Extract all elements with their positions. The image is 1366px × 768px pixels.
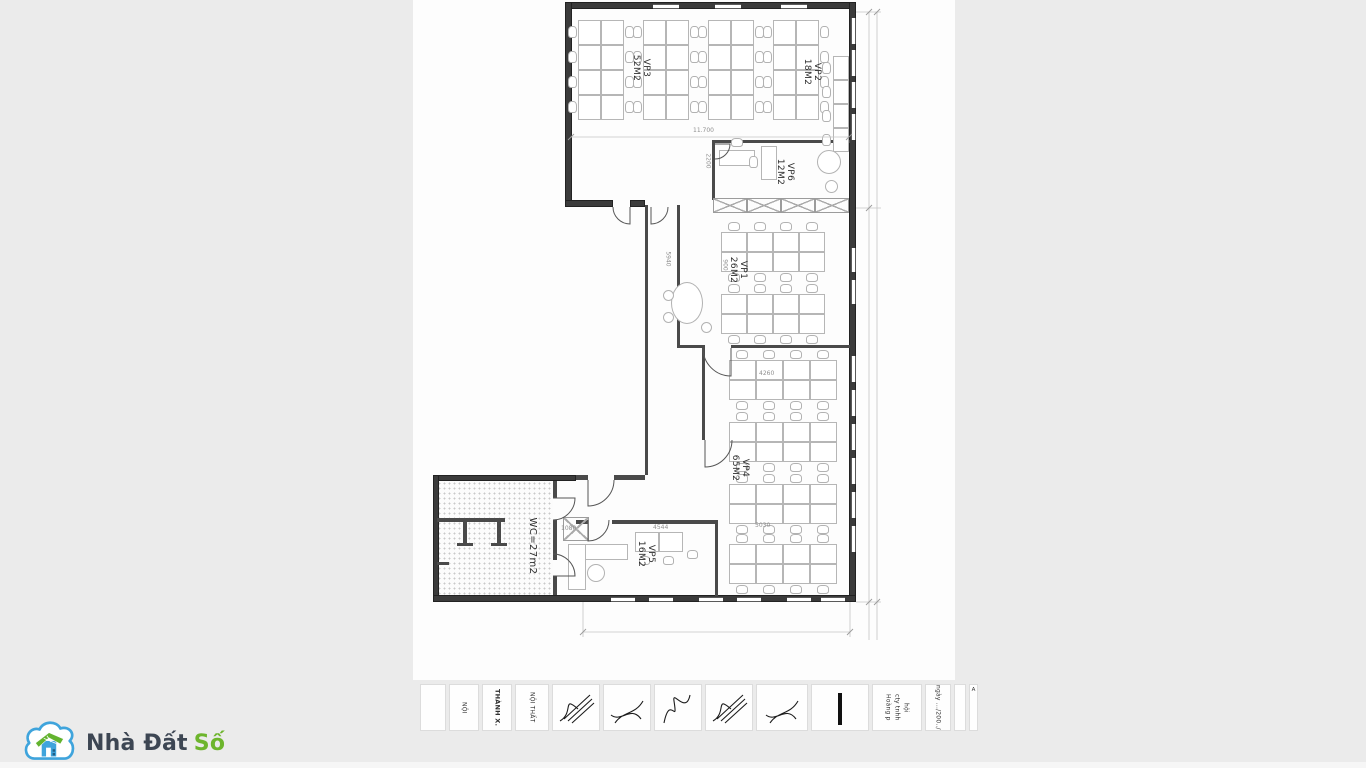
partition-wall bbox=[614, 475, 645, 480]
window bbox=[851, 248, 856, 272]
dimension-label: 1080 bbox=[561, 526, 576, 532]
chair bbox=[817, 350, 829, 359]
desk bbox=[601, 45, 624, 70]
desk bbox=[578, 70, 601, 95]
round-furniture bbox=[825, 180, 838, 193]
window bbox=[699, 597, 723, 602]
window bbox=[851, 82, 856, 108]
dimension-label: 4260 bbox=[759, 371, 774, 377]
desk bbox=[729, 544, 756, 564]
cabinet bbox=[713, 198, 747, 213]
dimension-label: 900 bbox=[722, 259, 728, 270]
title-block-cell bbox=[420, 684, 446, 731]
title-block-text: hội bbox=[903, 703, 910, 713]
desk bbox=[810, 442, 837, 462]
desk bbox=[601, 20, 624, 45]
chair bbox=[780, 222, 792, 231]
chair bbox=[763, 51, 772, 63]
desk bbox=[783, 484, 810, 504]
room-label-vp4: VP465M2 bbox=[730, 455, 750, 482]
cabinet bbox=[781, 198, 815, 213]
desk bbox=[721, 294, 747, 314]
dimension-label: 5030 bbox=[755, 523, 770, 529]
chair bbox=[817, 412, 829, 421]
chair bbox=[728, 284, 740, 293]
window bbox=[851, 390, 856, 416]
cabinet bbox=[747, 198, 781, 213]
desk bbox=[773, 95, 796, 120]
window bbox=[851, 114, 856, 140]
title-block-text: A bbox=[972, 687, 976, 693]
desk bbox=[756, 544, 783, 564]
chair bbox=[763, 585, 775, 594]
chair bbox=[736, 534, 748, 543]
chair bbox=[817, 525, 829, 534]
room-label-vp2: VP218M2 bbox=[802, 59, 822, 86]
desk bbox=[756, 504, 783, 524]
title-block-cell: A bbox=[969, 684, 978, 731]
chair bbox=[763, 76, 772, 88]
image-viewer-background: VP352M2VP218M2VP612M2VP126M2VP465M2VP516… bbox=[0, 0, 1366, 768]
desk bbox=[729, 360, 756, 380]
meeting-table bbox=[671, 282, 703, 324]
title-block-cell bbox=[654, 684, 702, 731]
chair bbox=[790, 350, 802, 359]
watermark-logo: Nhà ĐấtSố bbox=[22, 720, 225, 766]
desk bbox=[773, 45, 796, 70]
dimension-label: 2200 bbox=[705, 153, 711, 168]
desk bbox=[708, 95, 731, 120]
title-block-cell: THÀNH X. bbox=[482, 684, 512, 731]
window bbox=[851, 492, 856, 518]
desk bbox=[810, 380, 837, 400]
desk bbox=[729, 484, 756, 504]
desk bbox=[833, 128, 849, 152]
chair-round bbox=[663, 312, 674, 323]
chair bbox=[736, 350, 748, 359]
desk bbox=[666, 95, 689, 120]
chair bbox=[698, 51, 707, 63]
desk bbox=[643, 95, 666, 120]
desk bbox=[731, 45, 754, 70]
desk bbox=[731, 20, 754, 45]
desk bbox=[756, 484, 783, 504]
desk bbox=[601, 70, 624, 95]
dimension-label: 4544 bbox=[653, 525, 668, 531]
chair bbox=[749, 156, 758, 168]
chair bbox=[568, 101, 577, 113]
signature-scribble bbox=[553, 685, 599, 730]
chair bbox=[822, 62, 831, 74]
desk bbox=[578, 95, 601, 120]
chair bbox=[763, 412, 775, 421]
chair bbox=[806, 284, 818, 293]
chair bbox=[822, 110, 831, 122]
chair bbox=[790, 534, 802, 543]
partition-wall bbox=[457, 543, 473, 546]
room-label-vp5: VP516M2 bbox=[636, 541, 656, 568]
dimension-label: 5940 bbox=[665, 251, 671, 266]
desk bbox=[708, 70, 731, 95]
partition-wall bbox=[702, 345, 705, 440]
desk bbox=[783, 422, 810, 442]
desk bbox=[833, 104, 849, 128]
partition-wall bbox=[553, 520, 557, 560]
desk bbox=[783, 504, 810, 524]
chair bbox=[736, 585, 748, 594]
desk bbox=[773, 232, 799, 252]
chair bbox=[790, 463, 802, 472]
desk bbox=[799, 314, 825, 334]
chair bbox=[728, 222, 740, 231]
desk bbox=[773, 70, 796, 95]
chair bbox=[728, 335, 740, 344]
chair bbox=[754, 284, 766, 293]
desk bbox=[810, 484, 837, 504]
window bbox=[715, 4, 741, 9]
room-label-vp3: VP352M2 bbox=[631, 55, 651, 82]
window bbox=[737, 597, 761, 602]
brand-text: Nhà ĐấtSố bbox=[86, 731, 225, 756]
brand-suffix: Số bbox=[194, 731, 225, 756]
wall bbox=[565, 200, 613, 207]
desk bbox=[810, 564, 837, 584]
dimension-label: 11.700 bbox=[693, 128, 714, 134]
desk bbox=[810, 544, 837, 564]
partition-wall bbox=[553, 481, 557, 498]
window bbox=[821, 597, 845, 602]
chair bbox=[820, 26, 829, 38]
partition-wall bbox=[712, 140, 715, 200]
chair bbox=[763, 101, 772, 113]
window bbox=[611, 597, 635, 602]
chair bbox=[754, 222, 766, 231]
desk bbox=[729, 504, 756, 524]
title-block-text: cty tnhh bbox=[894, 694, 901, 720]
chair bbox=[754, 335, 766, 344]
bottom-band bbox=[0, 762, 1366, 768]
desk bbox=[783, 360, 810, 380]
title-block-cell bbox=[756, 684, 808, 731]
window bbox=[851, 526, 856, 552]
window bbox=[851, 458, 856, 484]
room-label-wc: WC=27m2 bbox=[527, 518, 537, 575]
partition-wall bbox=[645, 205, 648, 475]
round-furniture bbox=[817, 150, 841, 174]
desk bbox=[731, 70, 754, 95]
partition-wall bbox=[677, 205, 680, 348]
desk bbox=[773, 252, 799, 272]
chair bbox=[698, 26, 707, 38]
window bbox=[851, 18, 856, 44]
desk bbox=[783, 442, 810, 462]
partition-wall bbox=[437, 562, 449, 565]
chair bbox=[780, 273, 792, 282]
chair bbox=[822, 86, 831, 98]
cabinet bbox=[815, 198, 849, 213]
room-label-vp1: VP126M2 bbox=[728, 257, 748, 284]
desk bbox=[666, 70, 689, 95]
chair bbox=[817, 474, 829, 483]
desk bbox=[578, 20, 601, 45]
desk bbox=[601, 95, 624, 120]
chair bbox=[633, 26, 642, 38]
title-block-text: NỘI THẤT bbox=[529, 692, 536, 722]
window bbox=[851, 280, 856, 304]
title-block-cell: ngày .../200../ bbox=[925, 684, 951, 731]
desk bbox=[568, 544, 586, 590]
wall bbox=[630, 200, 645, 207]
chair bbox=[806, 335, 818, 344]
title-block-text: Hoàng p bbox=[885, 694, 892, 721]
chair bbox=[780, 284, 792, 293]
chair bbox=[790, 525, 802, 534]
desk bbox=[799, 232, 825, 252]
brand-prefix: Nhà Đất bbox=[86, 731, 188, 756]
desk bbox=[731, 95, 754, 120]
partition-wall bbox=[715, 520, 718, 596]
desk bbox=[708, 45, 731, 70]
title-block-cell bbox=[603, 684, 651, 731]
window bbox=[787, 597, 811, 602]
chair bbox=[754, 273, 766, 282]
desk bbox=[756, 422, 783, 442]
partition-wall bbox=[677, 345, 703, 348]
desk bbox=[810, 360, 837, 380]
partition-wall bbox=[731, 345, 850, 348]
chair bbox=[817, 585, 829, 594]
desk bbox=[756, 442, 783, 462]
window bbox=[781, 4, 807, 9]
title-block-cell bbox=[954, 684, 966, 731]
desk bbox=[799, 252, 825, 272]
desk bbox=[721, 232, 747, 252]
chair bbox=[698, 76, 707, 88]
chair bbox=[763, 534, 775, 543]
chair bbox=[790, 412, 802, 421]
desk bbox=[747, 232, 773, 252]
desk bbox=[708, 20, 731, 45]
title-block-cell: NỘI THẤT bbox=[515, 684, 549, 731]
floorplan-image[interactable]: VP352M2VP218M2VP612M2VP126M2VP465M2VP516… bbox=[413, 0, 955, 680]
desk bbox=[747, 314, 773, 334]
chair bbox=[736, 525, 748, 534]
window bbox=[649, 597, 673, 602]
desk bbox=[729, 422, 756, 442]
desk bbox=[773, 20, 796, 45]
chair bbox=[790, 585, 802, 594]
chair bbox=[763, 474, 775, 483]
chair bbox=[806, 222, 818, 231]
title-block-cell bbox=[705, 684, 753, 731]
partition-wall bbox=[553, 576, 557, 595]
desk bbox=[783, 564, 810, 584]
desk bbox=[578, 45, 601, 70]
chair bbox=[568, 76, 577, 88]
chair bbox=[790, 474, 802, 483]
desk bbox=[810, 504, 837, 524]
chair bbox=[736, 401, 748, 410]
desk bbox=[783, 380, 810, 400]
wall bbox=[433, 475, 439, 601]
chair bbox=[663, 556, 674, 565]
title-block-cell bbox=[811, 684, 869, 731]
window bbox=[851, 424, 856, 450]
chair bbox=[763, 350, 775, 359]
partition-wall bbox=[491, 543, 507, 546]
desk bbox=[833, 80, 849, 104]
title-block: NỘITHÀNH X.NỘI THẤTHoàng pcty tnhhhộingà… bbox=[420, 684, 978, 733]
desk bbox=[833, 56, 849, 80]
chair bbox=[568, 26, 577, 38]
desk bbox=[729, 564, 756, 584]
room-label-vp6: VP612M2 bbox=[775, 159, 795, 186]
chair bbox=[817, 401, 829, 410]
chair bbox=[763, 401, 775, 410]
title-block-text: THÀNH X. bbox=[494, 689, 501, 726]
desk bbox=[773, 314, 799, 334]
desk bbox=[773, 294, 799, 314]
signature-scribble bbox=[604, 685, 650, 730]
window bbox=[653, 4, 679, 9]
chair bbox=[698, 101, 707, 113]
desk bbox=[747, 252, 773, 272]
desk bbox=[666, 20, 689, 45]
title-block-cell: NỘI bbox=[449, 684, 479, 731]
desk bbox=[643, 20, 666, 45]
chair bbox=[731, 138, 743, 147]
title-block-text: ngày .../200../ bbox=[935, 685, 942, 730]
house-cloud-icon bbox=[22, 720, 78, 766]
desk bbox=[729, 380, 756, 400]
chair bbox=[633, 101, 642, 113]
desk bbox=[747, 294, 773, 314]
chair bbox=[736, 412, 748, 421]
chair bbox=[763, 463, 775, 472]
desk bbox=[796, 95, 819, 120]
title-block-cell bbox=[552, 684, 600, 731]
chair bbox=[780, 335, 792, 344]
signature-scribble bbox=[757, 685, 807, 730]
desk bbox=[810, 422, 837, 442]
chair-round bbox=[701, 322, 712, 333]
stamp-bar bbox=[838, 693, 842, 725]
chair bbox=[806, 273, 818, 282]
wall bbox=[565, 2, 856, 9]
chair bbox=[568, 51, 577, 63]
desk bbox=[756, 564, 783, 584]
desk bbox=[721, 314, 747, 334]
chair bbox=[817, 463, 829, 472]
chair bbox=[763, 26, 772, 38]
signature-scribble bbox=[655, 685, 701, 730]
signature-scribble bbox=[706, 685, 752, 730]
desk bbox=[796, 20, 819, 45]
desk bbox=[783, 544, 810, 564]
chair-round bbox=[587, 564, 605, 582]
desk bbox=[666, 45, 689, 70]
chair bbox=[687, 550, 698, 559]
desk bbox=[756, 380, 783, 400]
title-block-cell: Hoàng pcty tnhhhội bbox=[872, 684, 922, 731]
desk bbox=[659, 532, 683, 552]
partition-wall bbox=[437, 518, 505, 522]
desk bbox=[799, 294, 825, 314]
window bbox=[851, 50, 856, 76]
chair bbox=[822, 134, 831, 146]
chair-round bbox=[663, 290, 674, 301]
chair bbox=[790, 401, 802, 410]
chair bbox=[817, 534, 829, 543]
window bbox=[851, 356, 856, 382]
title-block-text: NỘI bbox=[461, 702, 468, 714]
partition-wall bbox=[576, 475, 588, 480]
